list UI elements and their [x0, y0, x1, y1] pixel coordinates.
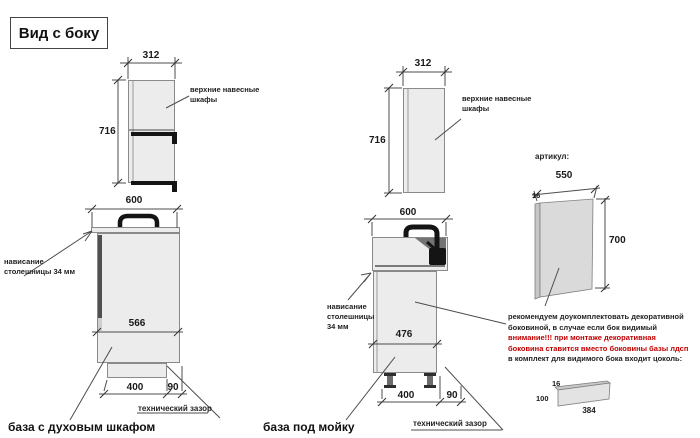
plinth-dim-thickness: 16 [552, 379, 560, 388]
note-line: столешницы 34 мм [4, 267, 75, 277]
recommendation-note: рекомендуем доукомплектовать декоративно… [508, 312, 688, 365]
plinth-panel [555, 381, 610, 406]
note-line: столешницы [327, 312, 374, 322]
middle-caption: база под мойку [263, 420, 355, 434]
middle-wall-cabinet [403, 88, 445, 193]
decorative-side-panel [535, 199, 593, 299]
note-line: в комплект для видимого бока входит цоко… [508, 354, 688, 365]
dim-plinth-width: 400 [127, 382, 144, 393]
dim-wall-height: 716 [369, 135, 386, 146]
panel-dim-width: 550 [556, 170, 573, 181]
note-line: нависание [4, 257, 75, 267]
label-line: верхние навесные [462, 94, 531, 104]
plinth-dim-height: 100 [536, 394, 549, 403]
left-base-cabinet-oven [97, 233, 180, 363]
overhang-note: нависание столешницы 34 мм [4, 257, 75, 277]
dim-counter-width: 600 [400, 207, 417, 218]
note-line: нависание [327, 302, 374, 312]
panel-dim-thickness: 16 [532, 191, 540, 200]
dim-wall-width: 312 [143, 50, 160, 61]
warning-line: боковина ставится вместо боковины базы л… [508, 344, 688, 355]
note-line: 34 мм [327, 322, 374, 332]
dim-gap: 90 [446, 390, 457, 401]
left-wall-cabinet [128, 80, 175, 183]
label-line: верхние навесные [190, 85, 259, 95]
cabinet-leg-icon [384, 373, 436, 388]
left-caption: база с духовым шкафом [8, 420, 155, 434]
dim-wall-width: 312 [415, 58, 432, 69]
dimension-lines [0, 0, 700, 438]
dim-counter-width: 600 [126, 195, 143, 206]
note-line: рекомендуем доукомплектовать декоративно… [508, 312, 688, 323]
left-plinth [107, 363, 167, 378]
sink-countertop-box [372, 237, 448, 271]
wall-cabinet-label: верхние навесные шкафы [190, 85, 259, 105]
dim-inner-width: 476 [396, 329, 413, 340]
view-title-box: Вид с боку [10, 17, 108, 49]
plinth-dim-width: 384 [582, 406, 595, 415]
panel-dim-height: 700 [609, 235, 626, 246]
label-line: шкафы [190, 95, 259, 105]
overhang-note: нависание столешницы 34 мм [327, 302, 374, 332]
oven-lower-edge [98, 318, 102, 331]
middle-base-cabinet-sink [373, 271, 437, 373]
oven-top-handle-icon [120, 216, 157, 227]
warning-line: внимание!!! при монтаже декоративная [508, 333, 688, 344]
tech-gap-label: технический зазор [138, 404, 212, 413]
label-line: шкафы [462, 104, 531, 114]
oven-door-edge [98, 235, 102, 318]
artikul-label: артикул: [535, 152, 569, 161]
dim-inner-width: 566 [129, 318, 146, 329]
dim-gap: 90 [167, 382, 178, 393]
page-title: Вид с боку [19, 25, 100, 42]
note-line: боковиной, в случае если бок видимый [508, 323, 688, 334]
dim-plinth-width: 400 [398, 390, 415, 401]
dim-wall-height: 716 [99, 126, 116, 137]
technical-drawing-canvas: Вид с боку [0, 0, 700, 438]
tech-gap-label: технический зазор [413, 419, 487, 428]
wall-cabinet-label: верхние навесные шкафы [462, 94, 531, 114]
